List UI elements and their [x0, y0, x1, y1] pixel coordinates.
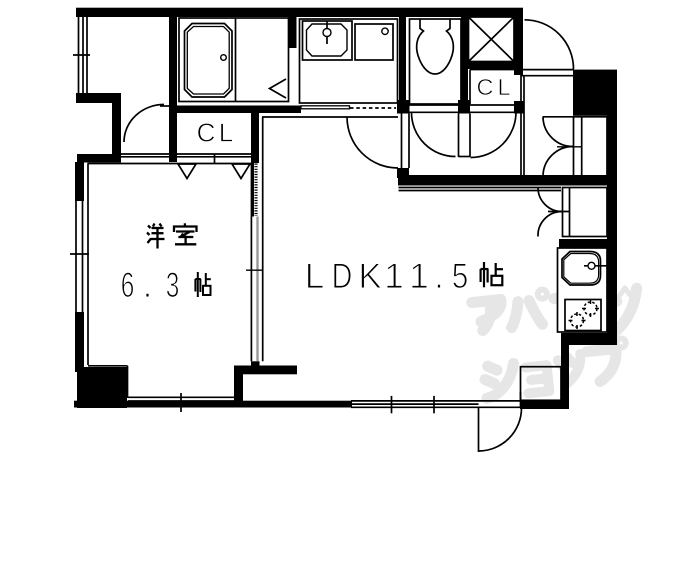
svg-text:3: 3	[166, 267, 180, 305]
svg-text:.: .	[143, 266, 153, 305]
svg-text:5: 5	[452, 257, 469, 296]
svg-text:C: C	[477, 74, 494, 100]
svg-text:L: L	[305, 257, 324, 296]
svg-text:L: L	[219, 118, 233, 148]
svg-text:K: K	[358, 257, 381, 296]
svg-text:L: L	[497, 74, 510, 100]
svg-text:1: 1	[409, 257, 428, 296]
svg-text:1: 1	[384, 257, 403, 296]
svg-text:C: C	[197, 118, 216, 148]
svg-text:D: D	[332, 256, 353, 295]
svg-text:6: 6	[121, 267, 135, 305]
svg-text:.: .	[434, 257, 444, 296]
